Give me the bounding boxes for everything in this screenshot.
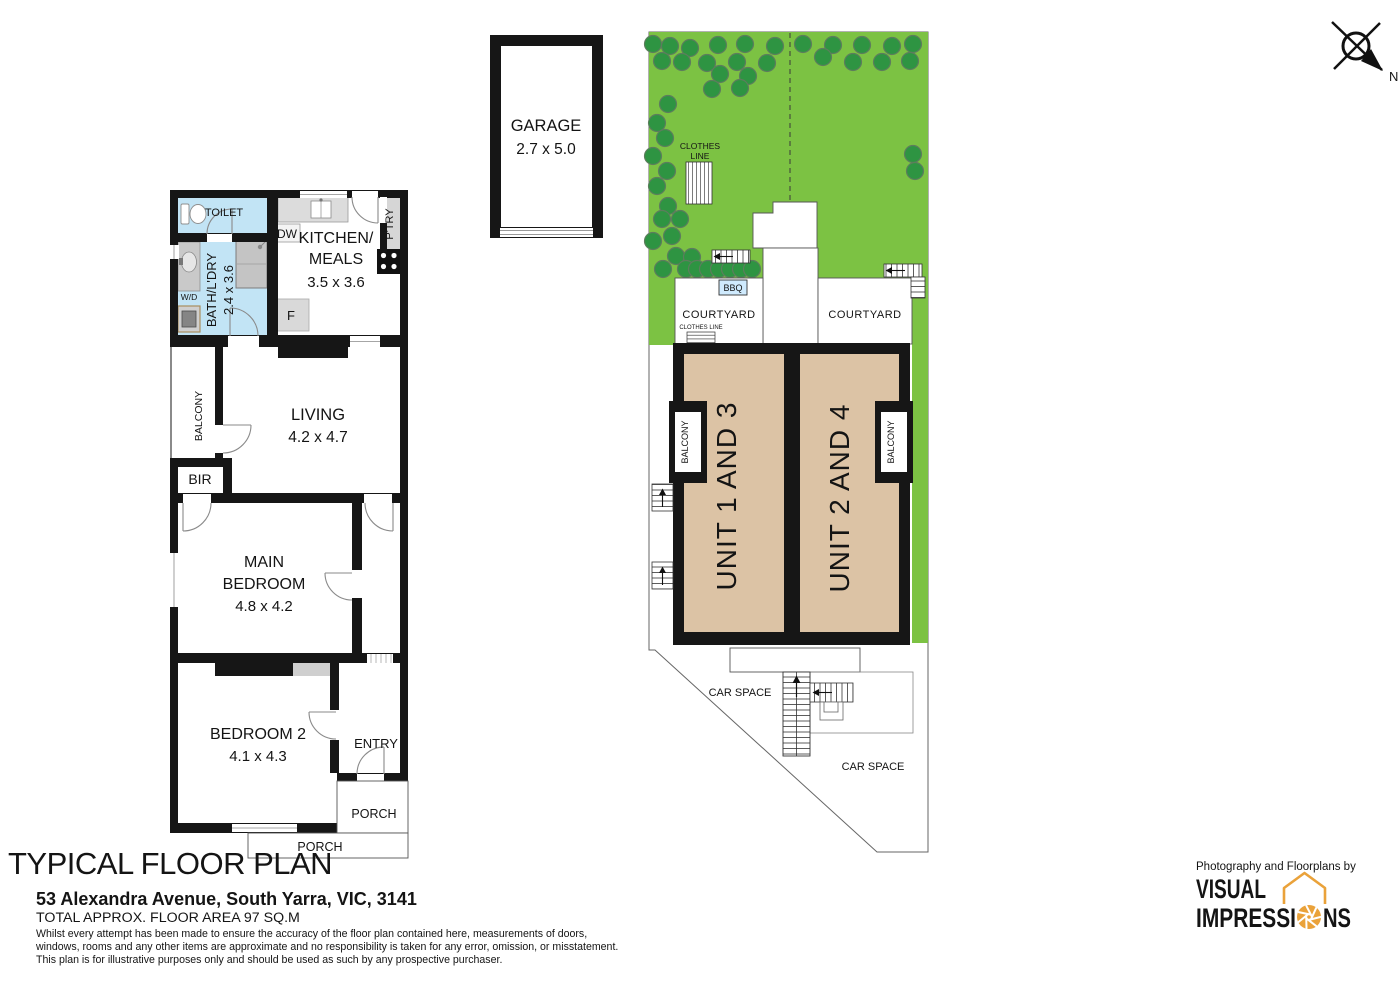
- tree-icon: [674, 54, 691, 71]
- tree-icon: [649, 178, 666, 195]
- disclaimer-line-3: This plan is for illustrative purposes o…: [36, 954, 502, 966]
- tree-icon: [907, 163, 924, 180]
- logo-name-ns: NS: [1323, 903, 1351, 933]
- tree-icon: [737, 36, 754, 53]
- stove-icon: [377, 249, 400, 274]
- logo-name-visual: VISUAL: [1196, 874, 1266, 904]
- pantry-label: P'TRY: [384, 208, 396, 240]
- robe-shelf: [293, 663, 333, 676]
- tree-icon: [654, 53, 671, 70]
- compass-north-label: N: [1389, 69, 1398, 84]
- shower-icon: [236, 240, 267, 288]
- tree-icon: [645, 36, 662, 53]
- bbq-label: BBQ: [723, 283, 742, 293]
- logo-name-impressi: IMPRESSI: [1196, 903, 1296, 933]
- stairs-side-upper: [652, 484, 673, 511]
- house-icon: [1284, 873, 1325, 904]
- courtyard-right-label: COURTYARD: [828, 309, 901, 321]
- fridge-label: F: [287, 308, 295, 323]
- garage-dims: 2.7 x 5.0: [516, 141, 576, 158]
- courtyard-left-label: COURTYARD: [682, 309, 755, 321]
- tree-icon: [729, 54, 746, 71]
- garage-door: [500, 228, 593, 237]
- main-bedroom-dims: 4.8 x 4.2: [235, 598, 293, 615]
- garden-left-strip: [649, 278, 675, 345]
- unit-2-4-label: UNIT 2 AND 4: [824, 404, 855, 593]
- unit-balcony-right-label: BALCONY: [886, 420, 896, 463]
- bath-label: BATH/L'DRY: [204, 253, 219, 328]
- garage-interior: [501, 46, 592, 227]
- balcony-label: BALCONY: [193, 391, 205, 441]
- clothes-line-label-1: CLOTHES: [680, 141, 720, 151]
- tree-icon: [710, 37, 727, 54]
- unit-balcony-right: BALCONY: [875, 401, 913, 483]
- washer-icon: [178, 306, 200, 332]
- tree-icon: [649, 115, 666, 132]
- floor-area-text: TOTAL APPROX. FLOOR AREA 97 SQ.M: [36, 910, 300, 926]
- tree-icon: [732, 80, 749, 97]
- page-title: TYPICAL FLOOR PLAN: [8, 846, 332, 881]
- entry-label: ENTRY: [354, 736, 398, 751]
- stairs-garden-left: [712, 250, 750, 263]
- tree-icon: [657, 130, 674, 147]
- tree-icon: [712, 66, 729, 83]
- tree-icon: [815, 49, 832, 66]
- living-label: LIVING: [291, 406, 345, 424]
- vanity-icon: [178, 242, 200, 291]
- tree-icon: [884, 38, 901, 55]
- car-space-right-label: CAR SPACE: [842, 761, 905, 773]
- dishwasher-label: DW: [277, 227, 298, 241]
- tree-icon: [845, 54, 862, 71]
- floorplan-page: GARAGE 2.7 x 5.0: [0, 0, 1400, 990]
- disclaimer-line-1: Whilst every attempt has been made to en…: [36, 928, 587, 940]
- tree-icon: [654, 211, 671, 228]
- branding-logo: Photography and Floorplans by VISUAL IMP…: [1196, 861, 1356, 933]
- toilet-label: TOILET: [205, 207, 244, 219]
- garage: GARAGE 2.7 x 5.0: [490, 35, 603, 238]
- tree-icon: [854, 37, 871, 54]
- tree-icon: [795, 36, 812, 53]
- floor-plan: TOILET BATH/L'DRY 2.4 x 3.6 DW W/D KITCH…: [168, 188, 410, 858]
- main-bedroom-label-2: BEDROOM: [223, 576, 306, 593]
- tree-icon: [645, 233, 662, 250]
- tree-icon: [645, 148, 662, 165]
- toilet-icon: [181, 204, 206, 224]
- bedroom2-dims: 4.1 x 4.3: [229, 748, 287, 765]
- car-space-left-label: CAR SPACE: [709, 687, 772, 699]
- tree-icon: [767, 38, 784, 55]
- unit-balcony-left: BALCONY: [669, 401, 707, 483]
- clothes-line-small-label: CLOTHES LINE: [679, 325, 722, 331]
- unit-1-3-label: UNIT 1 AND 3: [711, 402, 742, 591]
- footer: TYPICAL FLOOR PLAN 53 Alexandra Avenue, …: [8, 846, 618, 966]
- tree-icon: [655, 261, 672, 278]
- logo-tagline: Photography and Floorplans by: [1196, 861, 1356, 873]
- kitchen-dims: 3.5 x 3.6: [307, 274, 365, 291]
- porch-side-label: PORCH: [351, 807, 396, 821]
- kitchen-label-2: MEALS: [309, 251, 363, 268]
- clothes-line-icon: [686, 162, 712, 204]
- tree-icon: [902, 53, 919, 70]
- central-path: [763, 248, 818, 345]
- bedroom2-label: BEDROOM 2: [210, 726, 306, 743]
- tree-icon: [759, 55, 776, 72]
- tree-icon: [874, 54, 891, 71]
- clothes-line-label-2: LINE: [691, 151, 710, 161]
- bir-label: BIR: [188, 471, 211, 487]
- tree-icon: [672, 211, 689, 228]
- compass-icon: N: [1332, 22, 1398, 84]
- garage-label: GARAGE: [511, 117, 582, 135]
- bath-dims: 2.4 x 3.6: [221, 265, 236, 315]
- aperture-icon: [1297, 905, 1321, 929]
- washer-label: W/D: [181, 292, 198, 302]
- main-bedroom-label-1: MAIN: [244, 554, 284, 571]
- tree-icon: [704, 81, 721, 98]
- address-text: 53 Alexandra Avenue, South Yarra, VIC, 3…: [36, 889, 417, 909]
- unit-balcony-left-label: BALCONY: [680, 420, 690, 463]
- garden-right-strip: [912, 278, 928, 643]
- floorplan-canvas: GARAGE 2.7 x 5.0: [0, 0, 1400, 990]
- tree-icon: [662, 38, 679, 55]
- tree-icon: [664, 228, 681, 245]
- tree-icon: [659, 163, 676, 180]
- tree-icon: [905, 36, 922, 53]
- kitchen-label-1: KITCHEN/: [299, 230, 374, 247]
- tree-icon: [905, 146, 922, 163]
- disclaimer-line-2: windows, rooms and any other items are a…: [35, 941, 618, 953]
- stairs-side-lower: [652, 562, 673, 589]
- stairs-main: [783, 672, 810, 756]
- landing-area: [730, 648, 860, 672]
- tree-icon: [660, 96, 677, 113]
- kitchen-bench: [278, 196, 348, 222]
- site-plan: CLOTHES LINE COURTYARD COURTYARD BBQ CLO…: [645, 32, 929, 852]
- living-dims: 4.2 x 4.7: [288, 429, 347, 446]
